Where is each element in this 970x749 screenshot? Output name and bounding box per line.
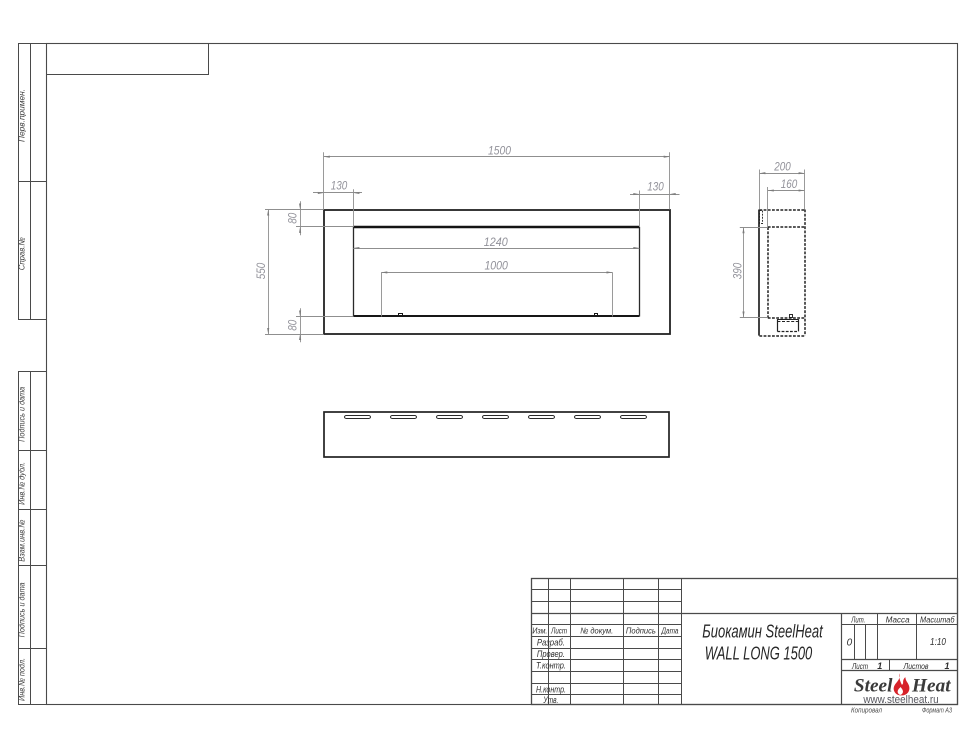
- svg-text:80: 80: [286, 213, 300, 224]
- svg-text:Копировал: Копировал: [851, 706, 882, 715]
- svg-text:№ докум.: № докум.: [580, 626, 613, 636]
- svg-text:1240: 1240: [484, 235, 508, 249]
- svg-text:Масса: Масса: [886, 614, 910, 624]
- svg-text:Утв.: Утв.: [543, 695, 559, 705]
- svg-text:1500: 1500: [488, 143, 511, 157]
- svg-text:Провер.: Провер.: [537, 649, 565, 659]
- svg-text:Подпись и дата: Подпись и дата: [17, 582, 27, 637]
- svg-text:Биокамин SteelHeat: Биокамин SteelHeat: [702, 622, 823, 642]
- svg-text:Н.контр.: Н.контр.: [536, 684, 566, 694]
- svg-text:1000: 1000: [484, 259, 508, 273]
- svg-text:Подпись и дата: Подпись и дата: [17, 387, 27, 442]
- svg-text:130: 130: [647, 180, 664, 194]
- svg-text:Т.контр.: Т.контр.: [536, 661, 566, 671]
- svg-text:Взам.инв.№: Взам.инв.№: [17, 520, 27, 562]
- svg-text:Разраб.: Разраб.: [537, 637, 565, 647]
- svg-text:0: 0: [847, 637, 853, 648]
- svg-text:Инв.№ подл.: Инв.№ подл.: [17, 658, 27, 701]
- svg-text:Листов: Листов: [903, 661, 929, 671]
- svg-text:Инв.№ дубл.: Инв.№ дубл.: [17, 462, 27, 505]
- svg-text:130: 130: [331, 178, 348, 192]
- svg-text:160: 160: [781, 177, 798, 191]
- svg-text:Дата: Дата: [661, 626, 679, 636]
- svg-text:WALL LONG 1500: WALL LONG 1500: [705, 644, 813, 664]
- svg-text:www.steelheat.ru: www.steelheat.ru: [862, 694, 938, 706]
- svg-text:Справ.№: Справ.№: [17, 237, 27, 270]
- svg-text:Масштаб: Масштаб: [920, 614, 956, 624]
- svg-text:1: 1: [944, 661, 949, 671]
- svg-text:Формат А3: Формат А3: [922, 706, 952, 715]
- svg-text:1: 1: [877, 661, 882, 671]
- svg-text:Изм.: Изм.: [532, 626, 547, 636]
- svg-text:Лист: Лист: [851, 661, 868, 671]
- svg-text:1:10: 1:10: [930, 636, 946, 648]
- svg-text:200: 200: [773, 160, 790, 174]
- svg-text:Перв.примен.: Перв.примен.: [17, 89, 27, 142]
- svg-text:Лит.: Лит.: [851, 614, 866, 624]
- svg-text:550: 550: [254, 263, 268, 280]
- svg-text:Лист: Лист: [550, 626, 567, 636]
- svg-text:390: 390: [730, 263, 744, 280]
- svg-text:80: 80: [286, 320, 300, 331]
- svg-text:Подпись: Подпись: [626, 626, 656, 636]
